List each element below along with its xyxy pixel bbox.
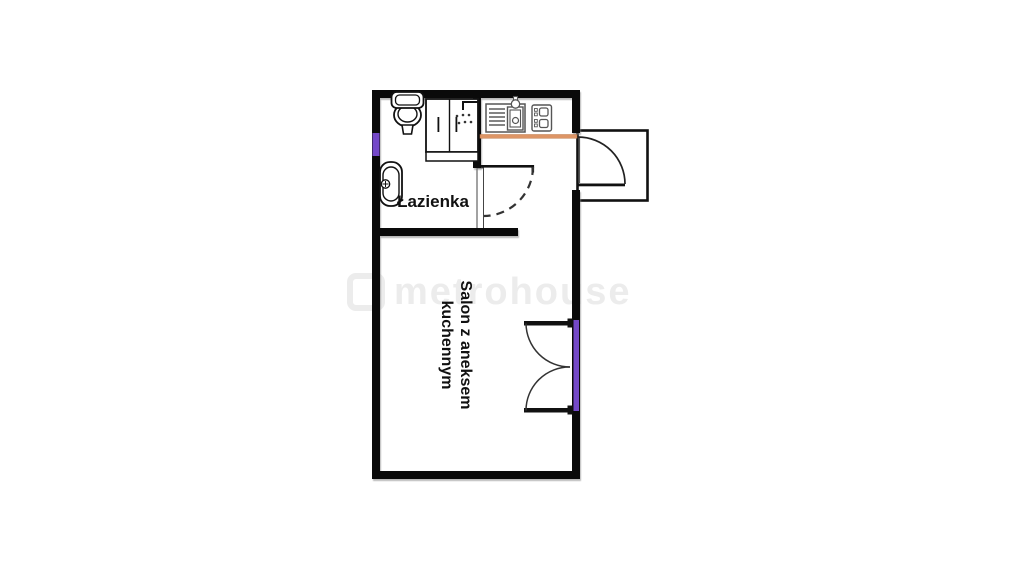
kitchen-counter-line: [480, 135, 577, 139]
wall-bathroom-bottom: [372, 228, 518, 236]
wall-right-upper: [572, 90, 580, 133]
living-room-label-line2: kuchennym: [437, 270, 456, 420]
floorplan-drawing: [0, 0, 1024, 576]
door-leaf-top: [524, 321, 570, 326]
bathroom-window-marker: [373, 133, 380, 156]
bathroom-door-swing-arc: [484, 167, 533, 216]
shower-icon: [426, 99, 478, 161]
bathroom-label: Łazienka: [394, 192, 472, 212]
burner-bottom: [540, 120, 549, 128]
door-swing-arc-bottom: [526, 367, 570, 411]
door-leaf-bottom: [524, 408, 570, 413]
bathroom-door-jamb: [477, 168, 484, 230]
kitchen-sink-icon: [486, 97, 525, 133]
stove-icon: [532, 105, 552, 131]
toilet-icon: [392, 92, 424, 134]
living-room-label: Salon z aneksem kuchennym: [437, 270, 475, 420]
burner-top: [540, 108, 549, 116]
living-room-label-line1: Salon z aneksem: [456, 270, 475, 420]
faucet-icon: [511, 100, 519, 108]
balcony-window-marker: [574, 320, 580, 411]
wall-bottom: [372, 471, 580, 479]
balcony-double-door: [524, 319, 573, 415]
shower-tray: [426, 152, 478, 161]
entry-vestibule-outline: [578, 131, 648, 201]
floorplan-canvas: metrohouse: [0, 0, 1024, 576]
door-swing-arc-top: [526, 324, 570, 368]
bathroom-door: [481, 165, 534, 216]
